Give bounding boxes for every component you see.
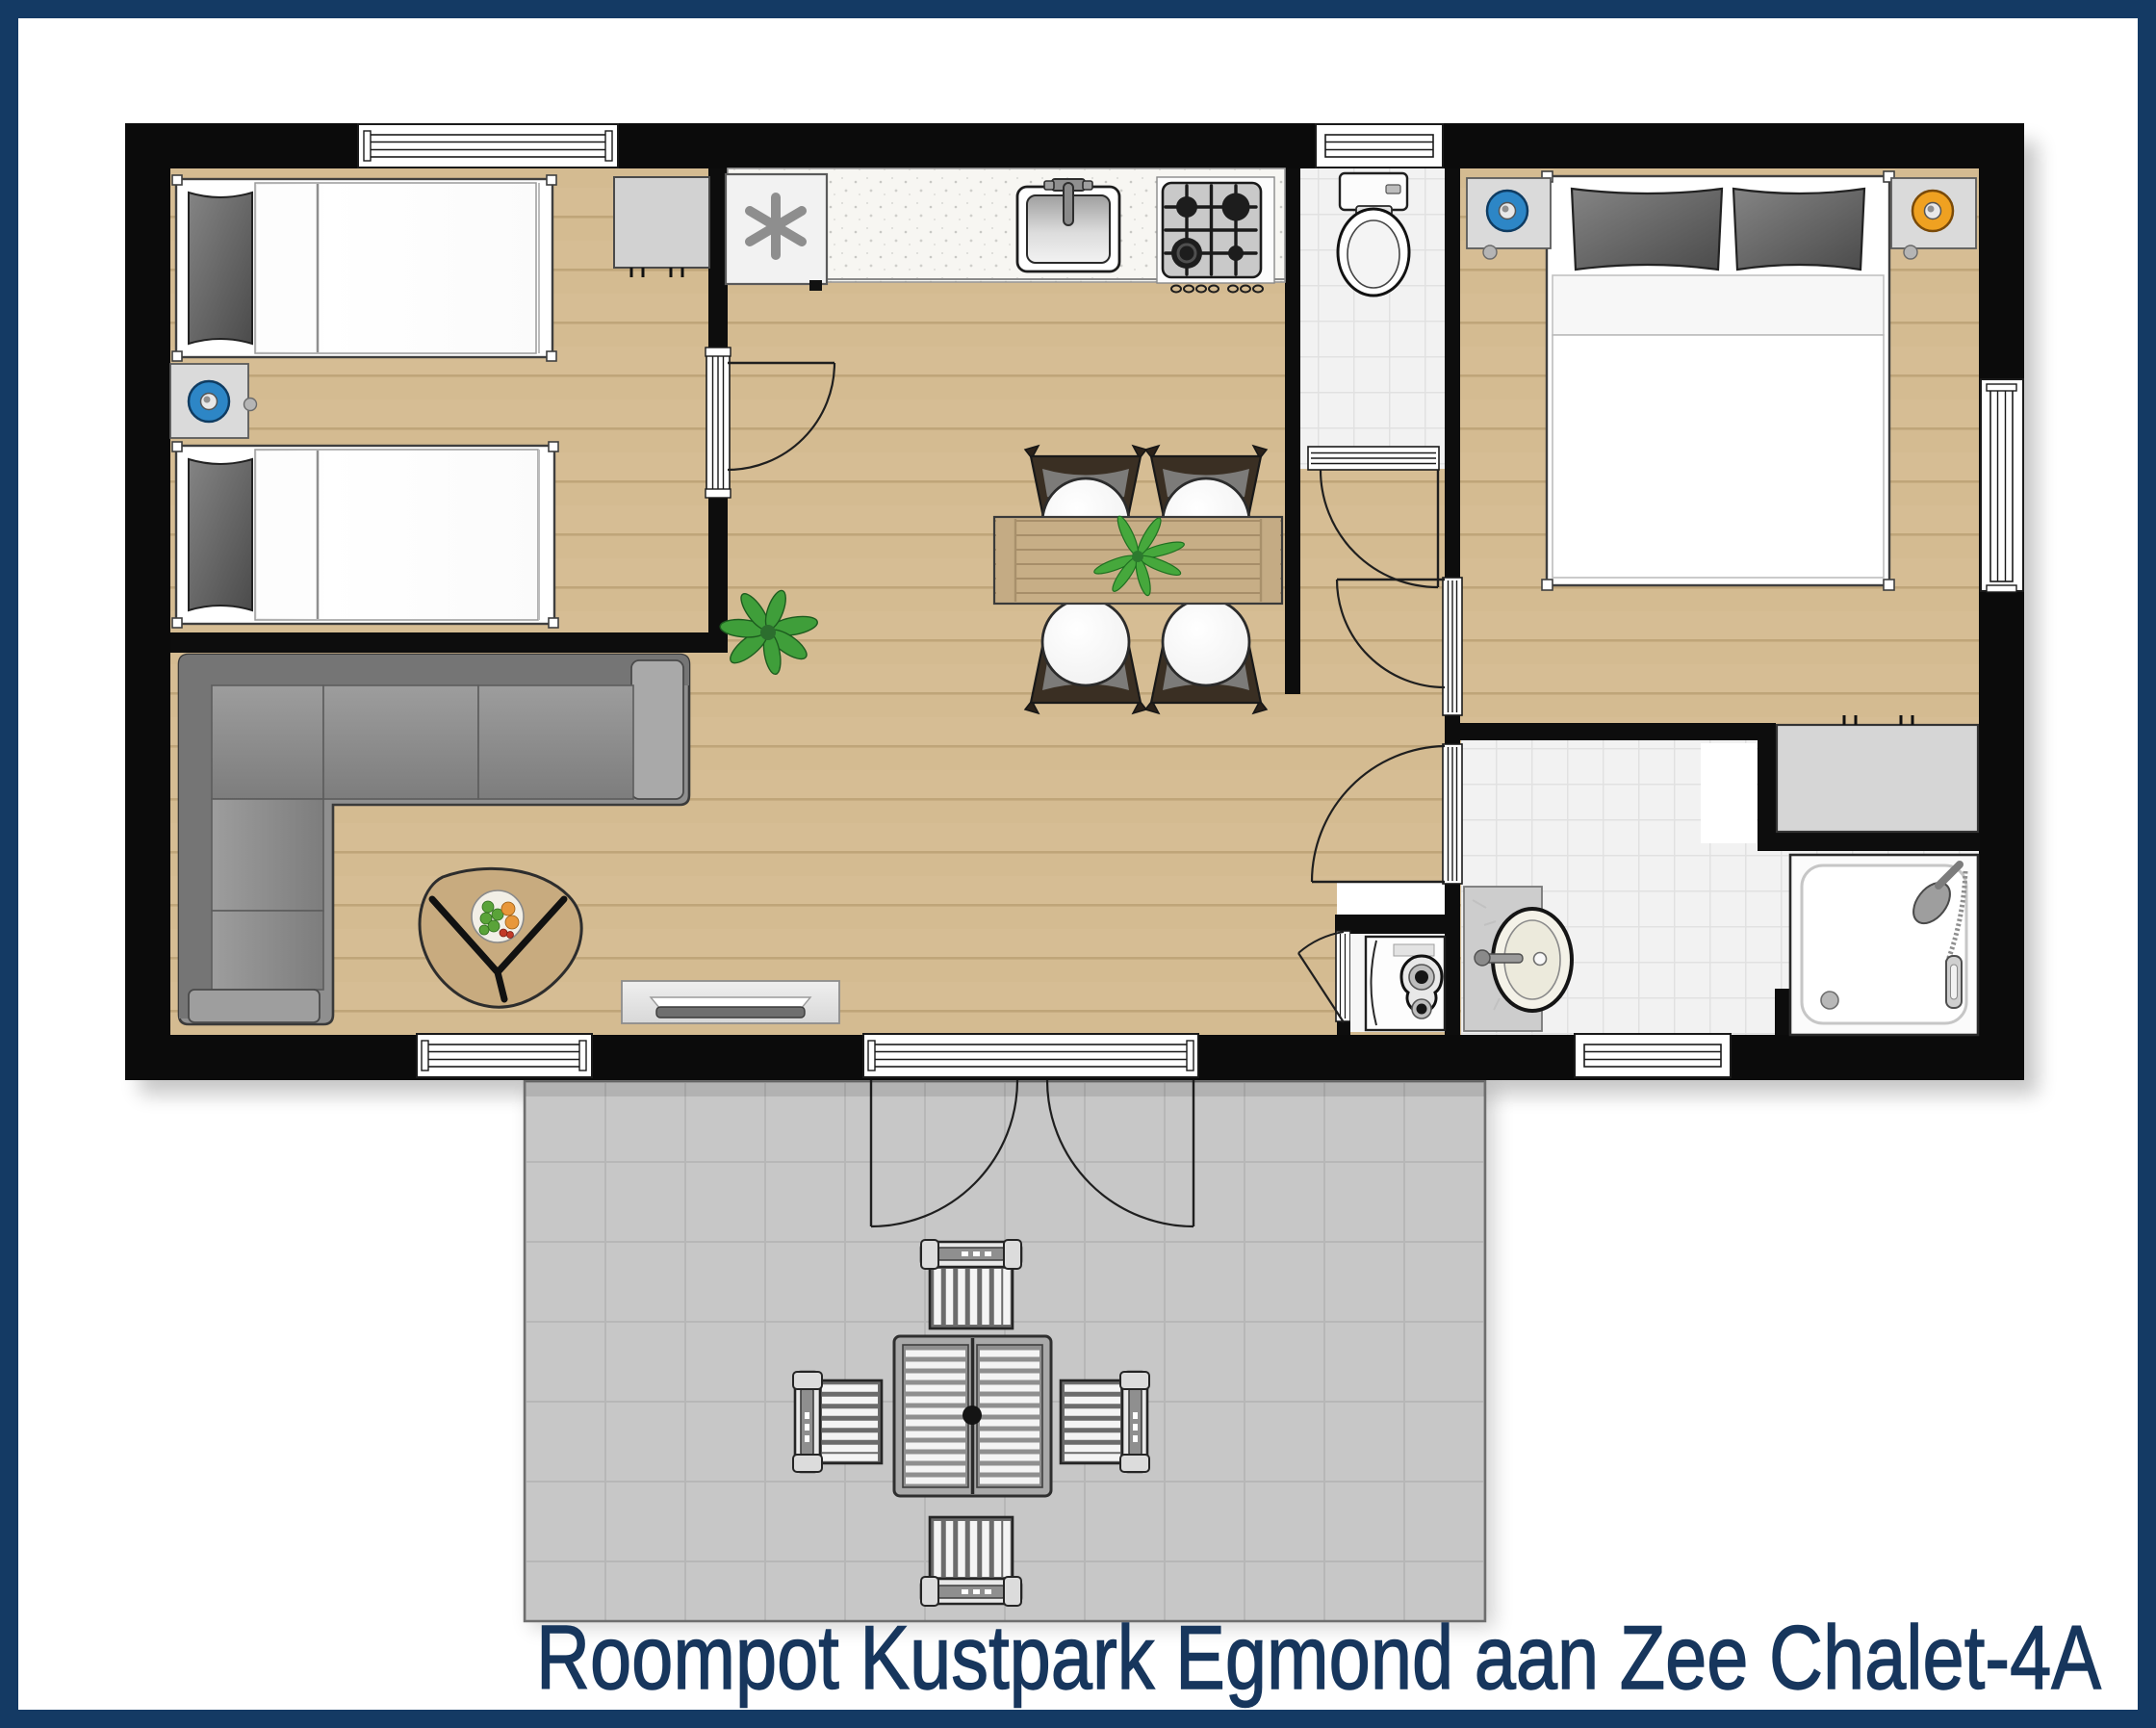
svg-text:Roompot Kustpark Egmond aan Ze: Roompot Kustpark Egmond aan Zee Chalet-4… bbox=[536, 1607, 2101, 1708]
